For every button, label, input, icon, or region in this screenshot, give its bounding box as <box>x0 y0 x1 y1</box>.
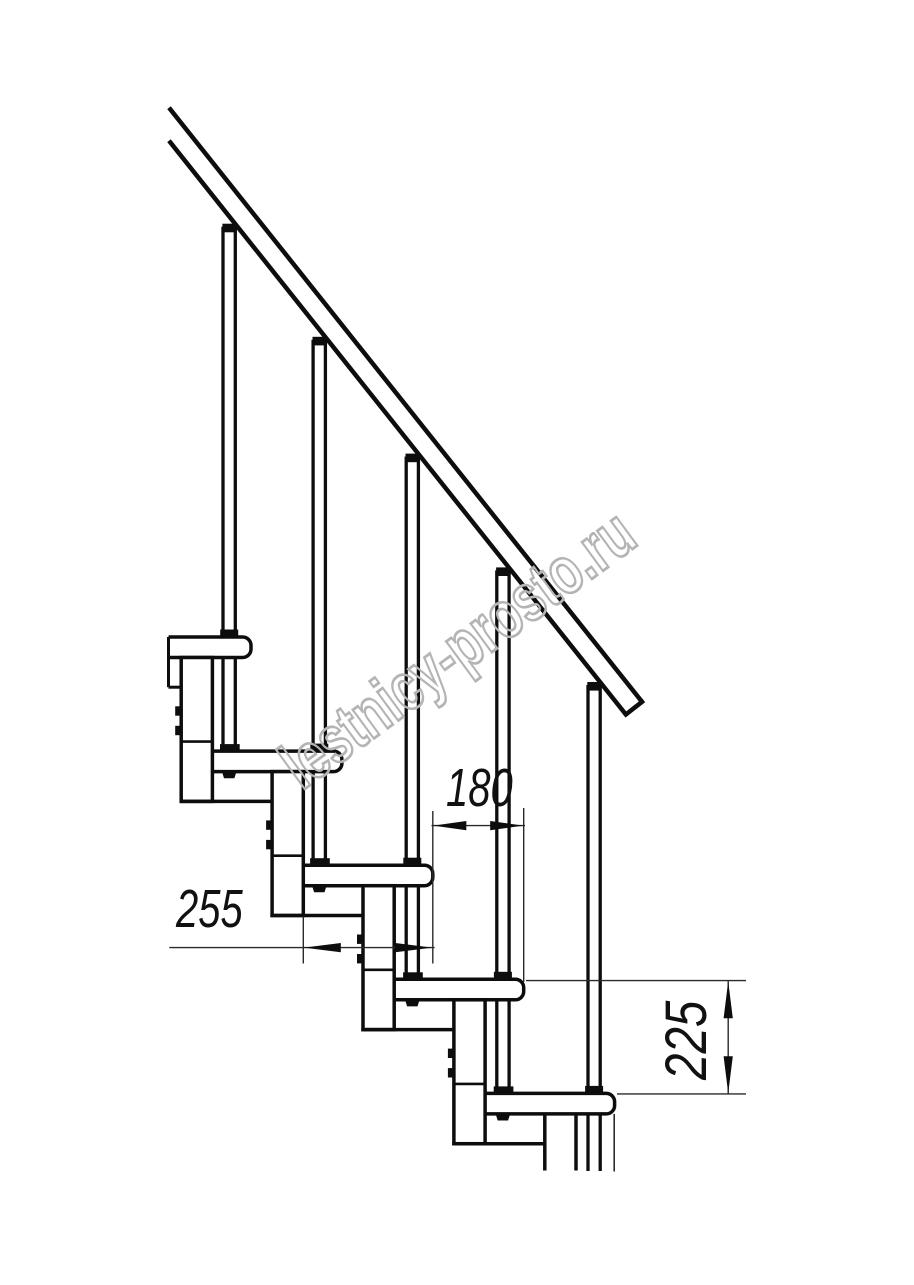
svg-text:180: 180 <box>446 758 513 818</box>
svg-text:255: 255 <box>175 879 243 939</box>
svg-text:225: 225 <box>655 1000 720 1081</box>
